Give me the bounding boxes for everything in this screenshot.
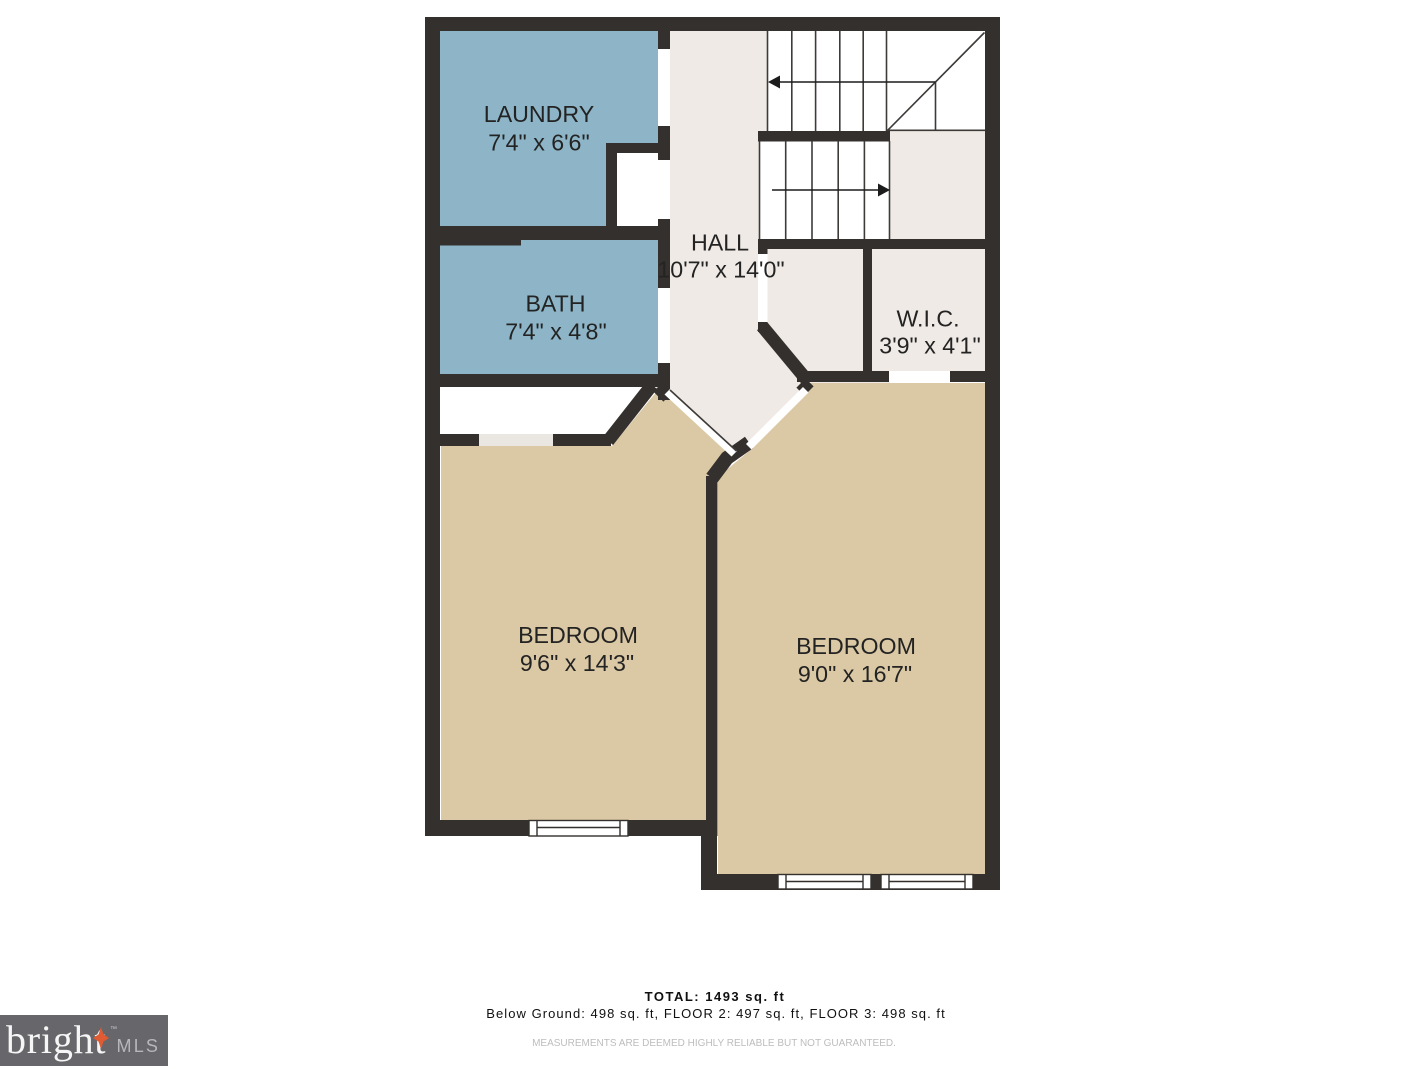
svg-text:3'9" x 4'1": 3'9" x 4'1": [879, 333, 980, 359]
svg-text:TOTAL: 1493 sq. ft: TOTAL: 1493 sq. ft: [645, 989, 786, 1004]
svg-text:9'0" x 16'7": 9'0" x 16'7": [798, 661, 912, 687]
svg-text:BATH: BATH: [525, 291, 585, 317]
svg-text:MEASUREMENTS ARE DEEMED HIGHLY: MEASUREMENTS ARE DEEMED HIGHLY RELIABLE …: [532, 1038, 896, 1049]
svg-text:MLS: MLS: [117, 1036, 161, 1056]
svg-text:LAUNDRY: LAUNDRY: [484, 101, 594, 127]
svg-text:BEDROOM: BEDROOM: [796, 633, 916, 659]
svg-text:10'7" x 14'0": 10'7" x 14'0": [657, 257, 784, 283]
svg-text:7'4" x 4'8": 7'4" x 4'8": [505, 319, 606, 345]
svg-text:9'6" x 14'3": 9'6" x 14'3": [520, 650, 634, 676]
svg-text:bright: bright: [6, 1017, 106, 1062]
svg-text:W.I.C.: W.I.C.: [896, 306, 959, 332]
svg-text:HALL: HALL: [691, 230, 749, 256]
svg-text:Below Ground: 498 sq. ft, FLOO: Below Ground: 498 sq. ft, FLOOR 2: 497 s…: [486, 1006, 945, 1021]
svg-text:BEDROOM: BEDROOM: [518, 622, 638, 648]
svg-text:™: ™: [110, 1026, 117, 1033]
svg-text:7'4" x 6'6": 7'4" x 6'6": [488, 130, 589, 156]
